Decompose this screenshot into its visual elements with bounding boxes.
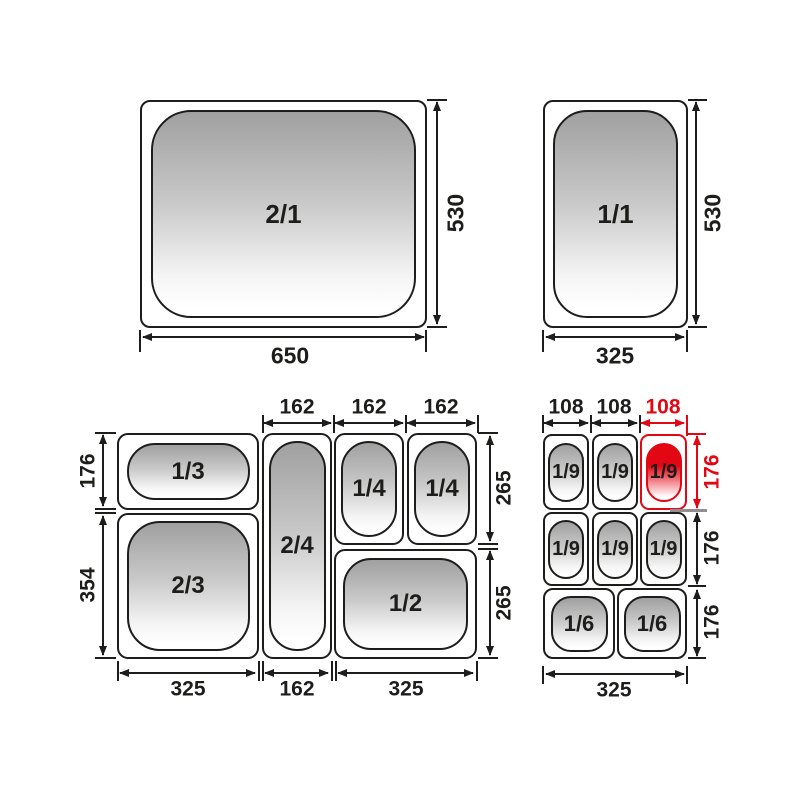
combo-right-cell-19-r2c1: 1/9 (543, 512, 589, 586)
gn21-frame: 2/1 (140, 100, 427, 328)
gn21-label: 2/1 (265, 199, 301, 230)
pan-19-label: 1/9 (552, 538, 580, 561)
extension-line (542, 330, 544, 352)
extension-line (686, 330, 688, 352)
pan-19: 1/9 (597, 520, 633, 579)
dim-label: 325 (388, 679, 423, 700)
dim-label: 162 (279, 397, 314, 418)
dimension-line (544, 422, 588, 424)
dim-label: 354 (78, 567, 99, 602)
extension-line (478, 657, 498, 659)
pan-14b-label: 1/4 (425, 475, 458, 503)
pan-19-label: 1/9 (601, 538, 629, 561)
extension-line (258, 661, 260, 681)
pan-19-label: 1/9 (601, 461, 629, 484)
pan-16: 1/6 (551, 596, 608, 652)
gn21-height-dim-label: 530 (445, 194, 468, 232)
dimension-line (265, 672, 328, 674)
dim-label-highlighted: 176 (702, 454, 723, 489)
extension-line (95, 512, 116, 514)
dimension-line (335, 422, 403, 424)
dim-label: 162 (351, 397, 386, 418)
dimension-line-highlighted (641, 422, 684, 424)
pan-12: 1/2 (343, 558, 468, 650)
extension-line (95, 657, 116, 659)
extension-line (478, 543, 498, 545)
combo-right-cell-16b: 1/6 (617, 588, 687, 659)
dim-label: 176 (78, 453, 99, 488)
extension-line (688, 585, 706, 587)
extension-line (95, 508, 116, 510)
combo-right-cell-19-highlighted: 1/9 (640, 434, 687, 510)
dim-label: 176 (702, 530, 723, 565)
combo-left-cell-12: 1/2 (334, 549, 477, 659)
extension-line (476, 661, 478, 681)
dimension-line (264, 422, 331, 424)
dim-label-highlighted: 108 (645, 397, 680, 418)
dimension-line (696, 513, 698, 584)
pan-19: 1/9 (548, 443, 584, 502)
dim-label: 108 (596, 397, 631, 418)
pan-23: 2/3 (127, 521, 250, 651)
extension-line (688, 326, 707, 328)
pan-14a-label: 1/4 (352, 475, 385, 503)
dimension-line (102, 516, 104, 655)
dimension-line (120, 672, 255, 674)
gn21-pan: 2/1 (151, 110, 416, 318)
extension-line (670, 509, 707, 512)
dimension-line-highlighted (696, 436, 698, 508)
pan-19-label: 1/9 (650, 461, 678, 484)
gn21-height-dimension-line (436, 102, 438, 324)
dim-label: 325 (170, 679, 205, 700)
pan-24: 2/4 (269, 441, 326, 651)
gn11-height-dimension-line (695, 102, 697, 324)
dimension-line (407, 422, 475, 424)
extension-line (688, 657, 706, 659)
combo-right-cell-16a: 1/6 (543, 588, 615, 659)
pan-19: 1/9 (646, 520, 682, 579)
extension-line (331, 661, 333, 681)
pan-13: 1/3 (127, 443, 250, 500)
dim-label: 162 (423, 397, 458, 418)
pan-19: 1/9 (597, 443, 633, 502)
dim-label: 265 (494, 585, 515, 620)
pan-19-label: 1/9 (650, 538, 678, 561)
dimension-line (489, 551, 491, 655)
pan-19: 1/9 (548, 520, 584, 579)
combo-left-cell-13: 1/3 (117, 433, 259, 510)
dimension-line (592, 422, 637, 424)
gn11-width-dimension-line (546, 336, 684, 338)
extension-line (686, 666, 688, 684)
extension-line (425, 330, 427, 352)
extension-line (427, 326, 447, 328)
dimension-line (102, 435, 104, 506)
extension-line (139, 330, 141, 352)
combo-right-cell-19-r2c2: 1/9 (592, 512, 638, 586)
gastronorm-size-diagram: 2/1 530 650 1/1 530 325 1/3 2/3 2/4 1/ (0, 0, 800, 800)
dimension-line (489, 436, 491, 541)
pan-19-label: 1/9 (552, 461, 580, 484)
pan-24-label: 2/4 (280, 532, 313, 560)
dim-label: 176 (702, 604, 723, 639)
combo-left-cell-14a: 1/4 (334, 433, 404, 545)
gn11-width-dim-label: 325 (596, 345, 634, 368)
pan-13-label: 1/3 (171, 458, 204, 486)
gn21-width-dim-label: 650 (271, 345, 309, 368)
pan-23-label: 2/3 (171, 572, 204, 600)
combo-right-cell-19-r1c1: 1/9 (543, 434, 589, 510)
pan-12-label: 1/2 (389, 590, 422, 618)
gn11-label: 1/1 (597, 199, 633, 230)
combo-left-cell-23: 2/3 (117, 513, 259, 659)
pan-19-highlighted: 1/9 (646, 443, 682, 502)
dimension-line (338, 672, 473, 674)
gn11-pan: 1/1 (553, 110, 678, 318)
dim-label: 108 (548, 397, 583, 418)
extension-line (477, 415, 479, 433)
dim-label: 162 (279, 679, 314, 700)
pan-14a: 1/4 (341, 441, 397, 537)
pan-16-label: 1/6 (564, 611, 595, 637)
dim-label: 325 (596, 680, 631, 701)
gn21-width-dimension-line (143, 336, 424, 338)
gn11-frame: 1/1 (543, 100, 688, 328)
combo-right-cell-19-r2c3: 1/9 (640, 512, 687, 586)
combo-left-cell-24: 2/4 (262, 433, 332, 659)
gn11-height-dim-label: 530 (702, 194, 725, 232)
dim-label: 265 (494, 470, 515, 505)
extension-line (542, 666, 544, 684)
combo-left-cell-14b: 1/4 (407, 433, 477, 545)
dimension-line (696, 590, 698, 656)
pan-16-label: 1/6 (637, 611, 668, 637)
dimension-line (546, 673, 684, 675)
pan-16: 1/6 (624, 596, 681, 652)
pan-14b: 1/4 (414, 441, 470, 537)
combo-right-cell-19-r1c2: 1/9 (592, 434, 638, 510)
extension-line (478, 432, 498, 434)
